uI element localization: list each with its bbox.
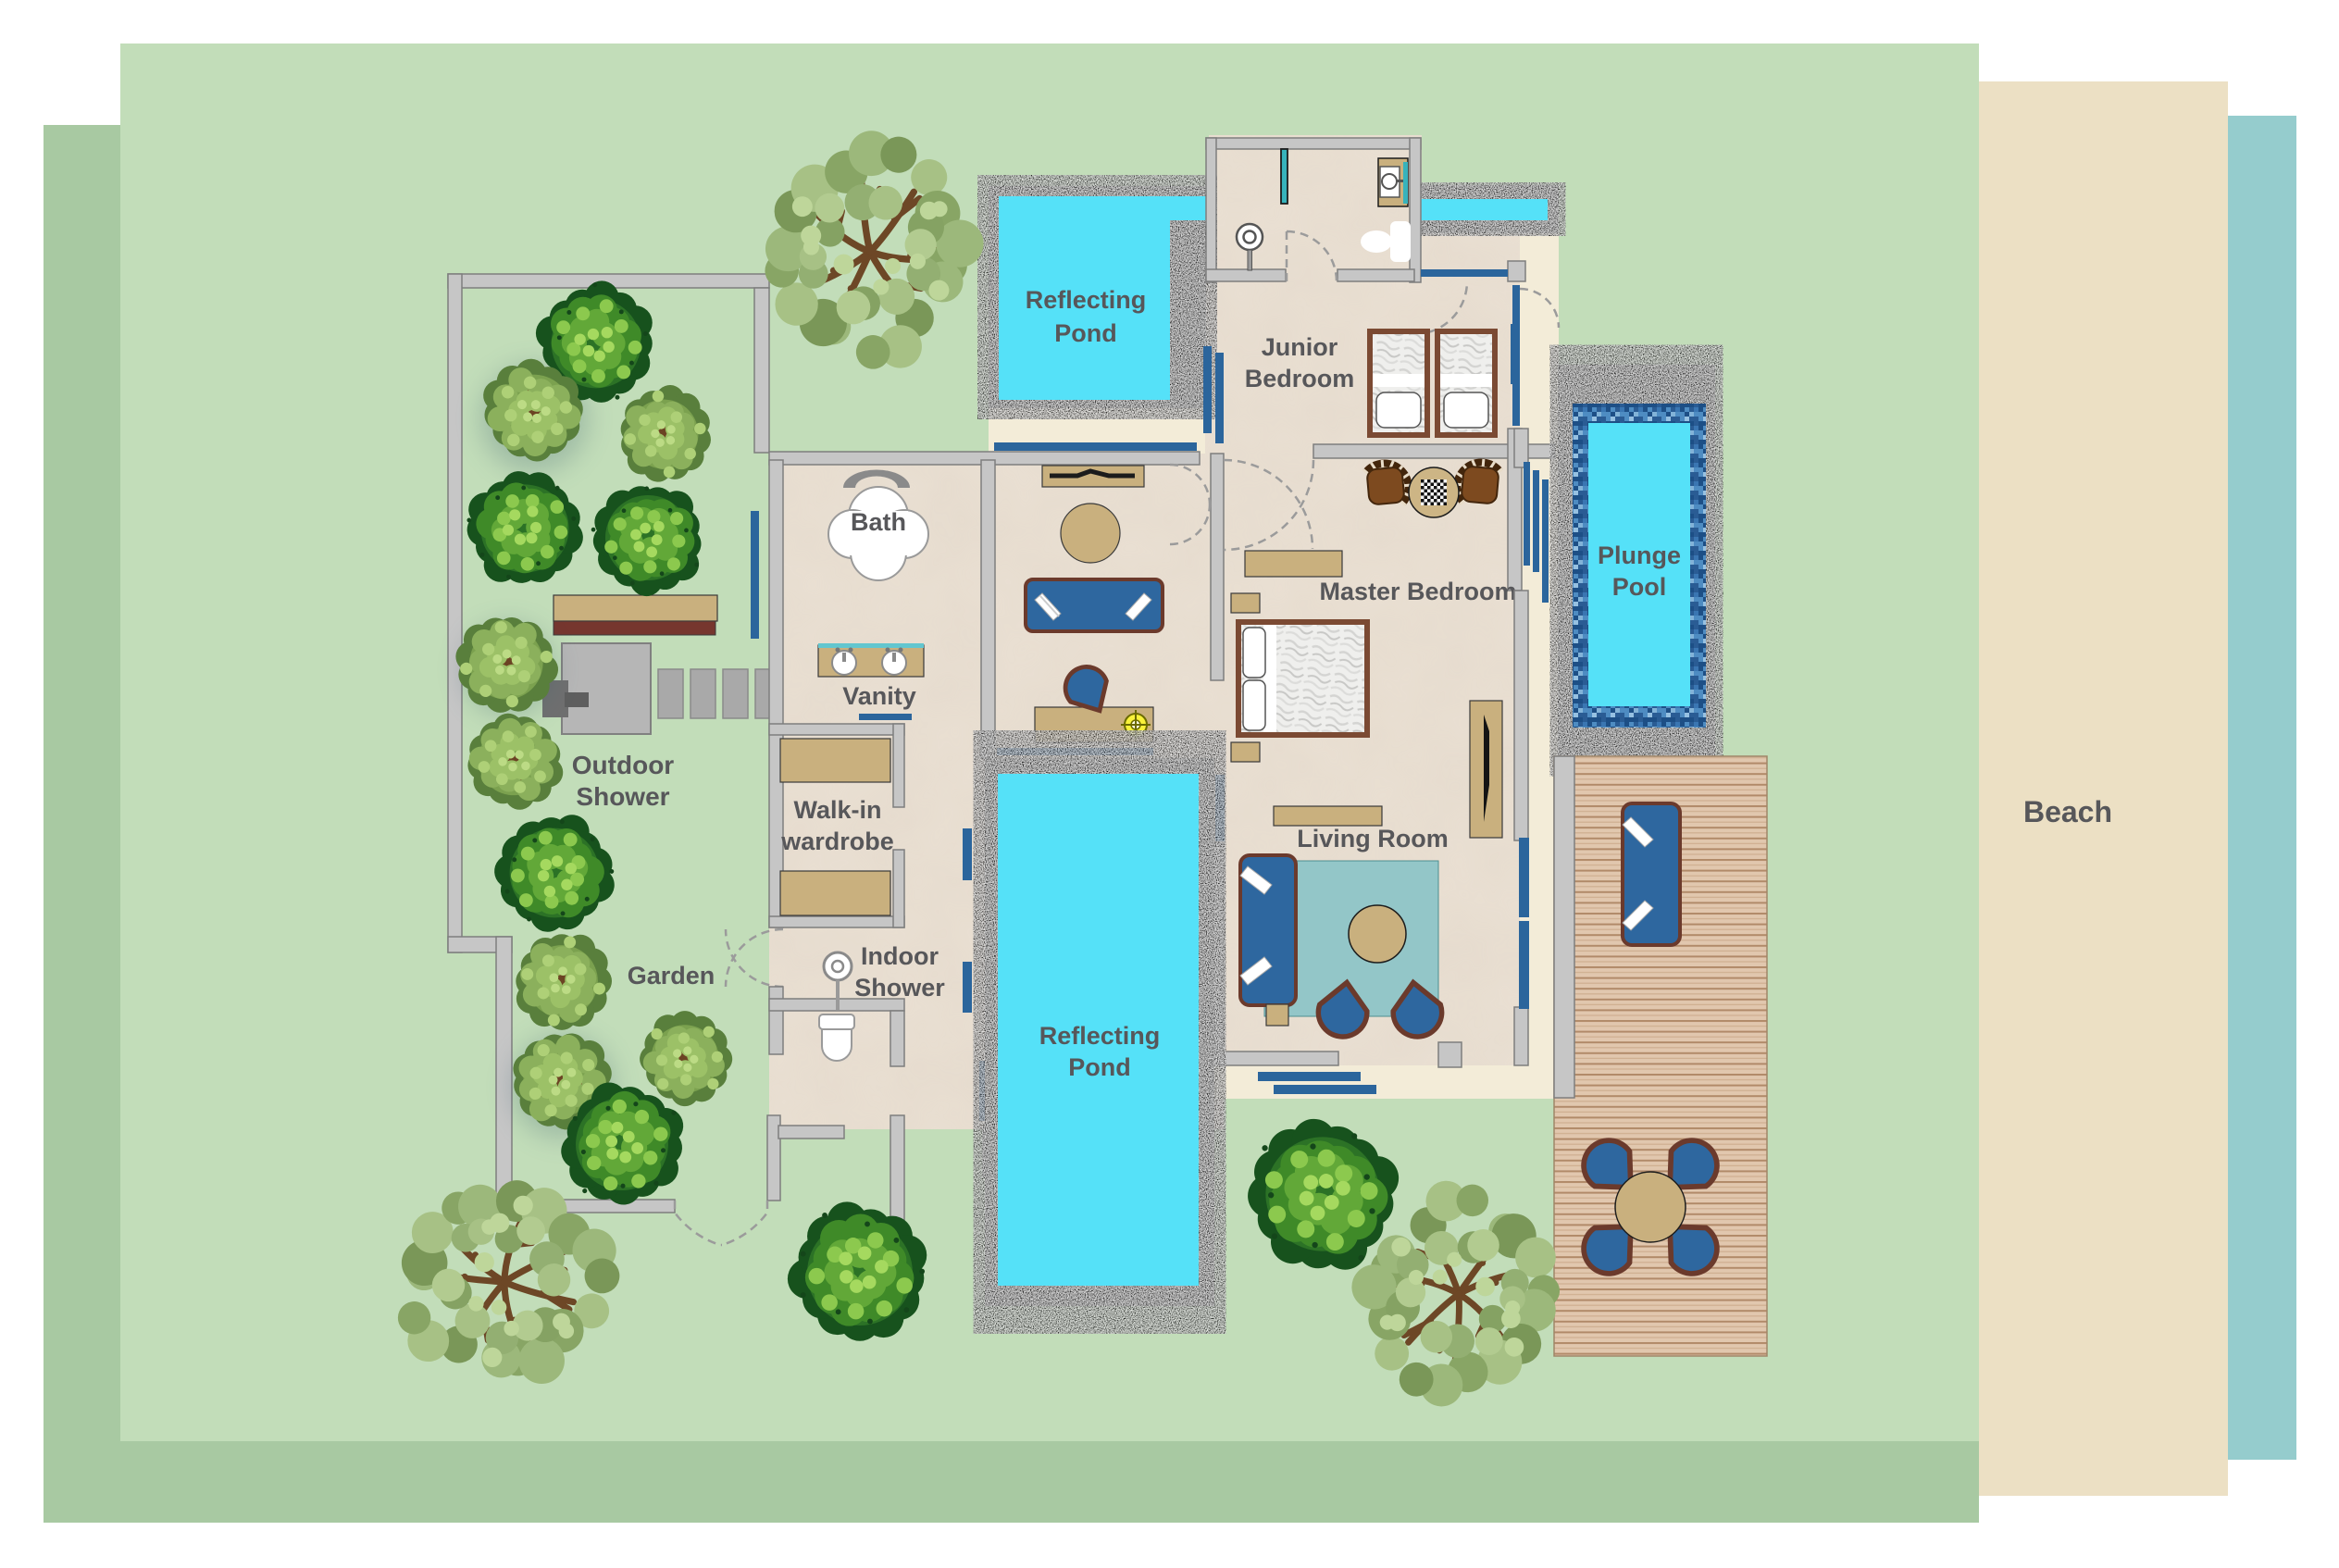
svg-text:Living Room: Living Room [1297,825,1449,852]
svg-text:Pond: Pond [1054,319,1117,347]
svg-text:Bedroom: Bedroom [1245,365,1355,392]
svg-text:Master Bedroom: Master Bedroom [1319,578,1516,605]
svg-text:Junior: Junior [1262,333,1338,361]
svg-text:Shower: Shower [854,974,945,1002]
svg-text:Walk-in: Walk-in [793,796,881,824]
svg-text:Indoor: Indoor [861,942,939,970]
svg-text:wardrobe: wardrobe [780,828,894,855]
svg-text:Bath: Bath [851,508,906,536]
svg-text:Garden: Garden [628,962,715,989]
svg-text:Outdoor: Outdoor [572,751,675,779]
svg-text:Pond: Pond [1068,1053,1131,1081]
svg-text:Reflecting: Reflecting [1026,286,1147,314]
svg-text:Beach: Beach [2023,795,2112,828]
svg-text:Pool: Pool [1612,573,1667,601]
svg-text:Vanity: Vanity [842,682,916,710]
svg-text:Reflecting: Reflecting [1039,1022,1161,1050]
svg-text:Shower: Shower [576,782,669,811]
svg-text:Plunge: Plunge [1598,541,1681,569]
